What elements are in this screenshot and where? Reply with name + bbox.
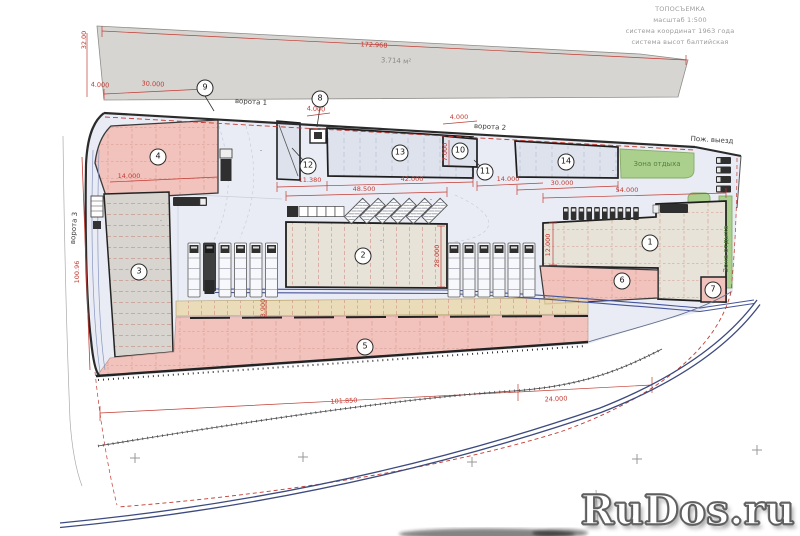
zone-10-building [443, 136, 477, 167]
zone-12-building [277, 121, 300, 180]
title-block-line3: система координат 1963 года [590, 26, 770, 37]
title-block-line2: масштаб 1:500 [590, 15, 770, 26]
site-plan-page: ТОПОСЪЕМКА масштаб 1:500 система координ… [0, 0, 800, 536]
gatehouse-square [310, 129, 326, 143]
zone-4-building [95, 120, 218, 199]
title-block-line1: ТОПОСЪЕМКА [590, 4, 770, 15]
zone-14-building [515, 141, 618, 178]
title-block-line4: система высот балтийская [590, 37, 770, 48]
watermark: RuDos.ru [581, 487, 795, 534]
title-block: ТОПОСЪЕМКА масштаб 1:500 система координ… [590, 4, 770, 48]
zone-2-building [286, 222, 447, 288]
loading-apron [176, 298, 588, 316]
zone-3-building [104, 192, 173, 357]
plan-drawing [0, 0, 800, 536]
zone-7-area [701, 277, 726, 302]
